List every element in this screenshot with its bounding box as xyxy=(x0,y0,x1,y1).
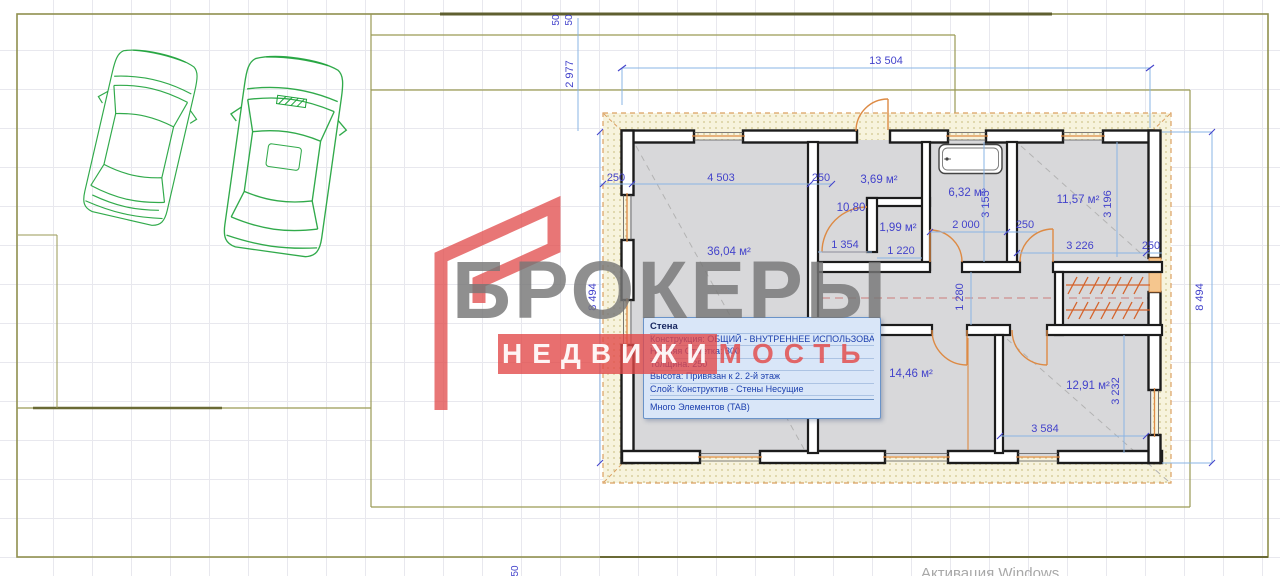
room-hall-area: 10,80 xyxy=(837,202,866,214)
room-entry-area: 3,69 м² xyxy=(860,174,897,186)
tooltip-footer: Много Элементов (TAB) xyxy=(650,399,874,414)
room-kitchen-area: 14,46 м² xyxy=(889,368,933,380)
watermark-brand-name: БРОКЕРЫ xyxy=(452,250,1012,332)
dim-gap2: 50 xyxy=(564,14,575,26)
dim-bed1-height: 3 196 xyxy=(1102,190,1114,218)
car-sunroof-hatch xyxy=(277,95,307,107)
dim-bed1-width: 3 226 xyxy=(1066,240,1094,252)
dim-total-width: 13 504 xyxy=(869,55,903,67)
room-bath-area: 6,32 м² xyxy=(948,187,985,199)
room-bedroom2-area: 12,91 м² xyxy=(1066,380,1110,392)
dim-gap-bottom: 50 xyxy=(510,565,521,576)
dim-site-offset: 2 977 xyxy=(564,60,576,88)
watermark-brand-subtitle: НЕДВИЖИМОСТЬ xyxy=(498,340,870,368)
dim-wall-c: 250 xyxy=(1016,219,1034,231)
windows-activation-text: Активация Windows xyxy=(921,565,1059,576)
bathtub xyxy=(939,145,1002,174)
dim-wall-b: 250 xyxy=(812,172,830,184)
dim-wall-d: 250 xyxy=(1142,240,1160,252)
dim-bed2-height: 3 232 xyxy=(1110,377,1122,405)
dim-bed2-width: 3 584 xyxy=(1031,423,1059,435)
room-bedroom1-area: 11,57 м² xyxy=(1057,194,1100,206)
cad-drawing-area[interactable]: 13 504 2 977 50 50 8 494 8 494 250 4 503… xyxy=(0,0,1280,576)
watermark-subtitle-rest: МОСТЬ xyxy=(717,338,871,369)
car-top-view-sedan xyxy=(213,50,356,260)
dim-wall-a: 250 xyxy=(607,172,625,184)
dim-height-right: 8 494 xyxy=(1194,283,1206,311)
tooltip-row-layer: Слой: Конструктив - Стены Несущие xyxy=(650,384,874,397)
watermark-subtitle-highlight: НЕДВИЖИ xyxy=(498,334,717,374)
dim-gap1: 50 xyxy=(551,14,562,26)
parking-cars xyxy=(73,42,355,260)
car-top-view-hatchback xyxy=(73,42,209,230)
room-wc-area: 1,99 м² xyxy=(879,222,916,234)
dim-bath-width: 2 000 xyxy=(952,219,980,231)
dim-living-width: 4 503 xyxy=(707,172,735,184)
